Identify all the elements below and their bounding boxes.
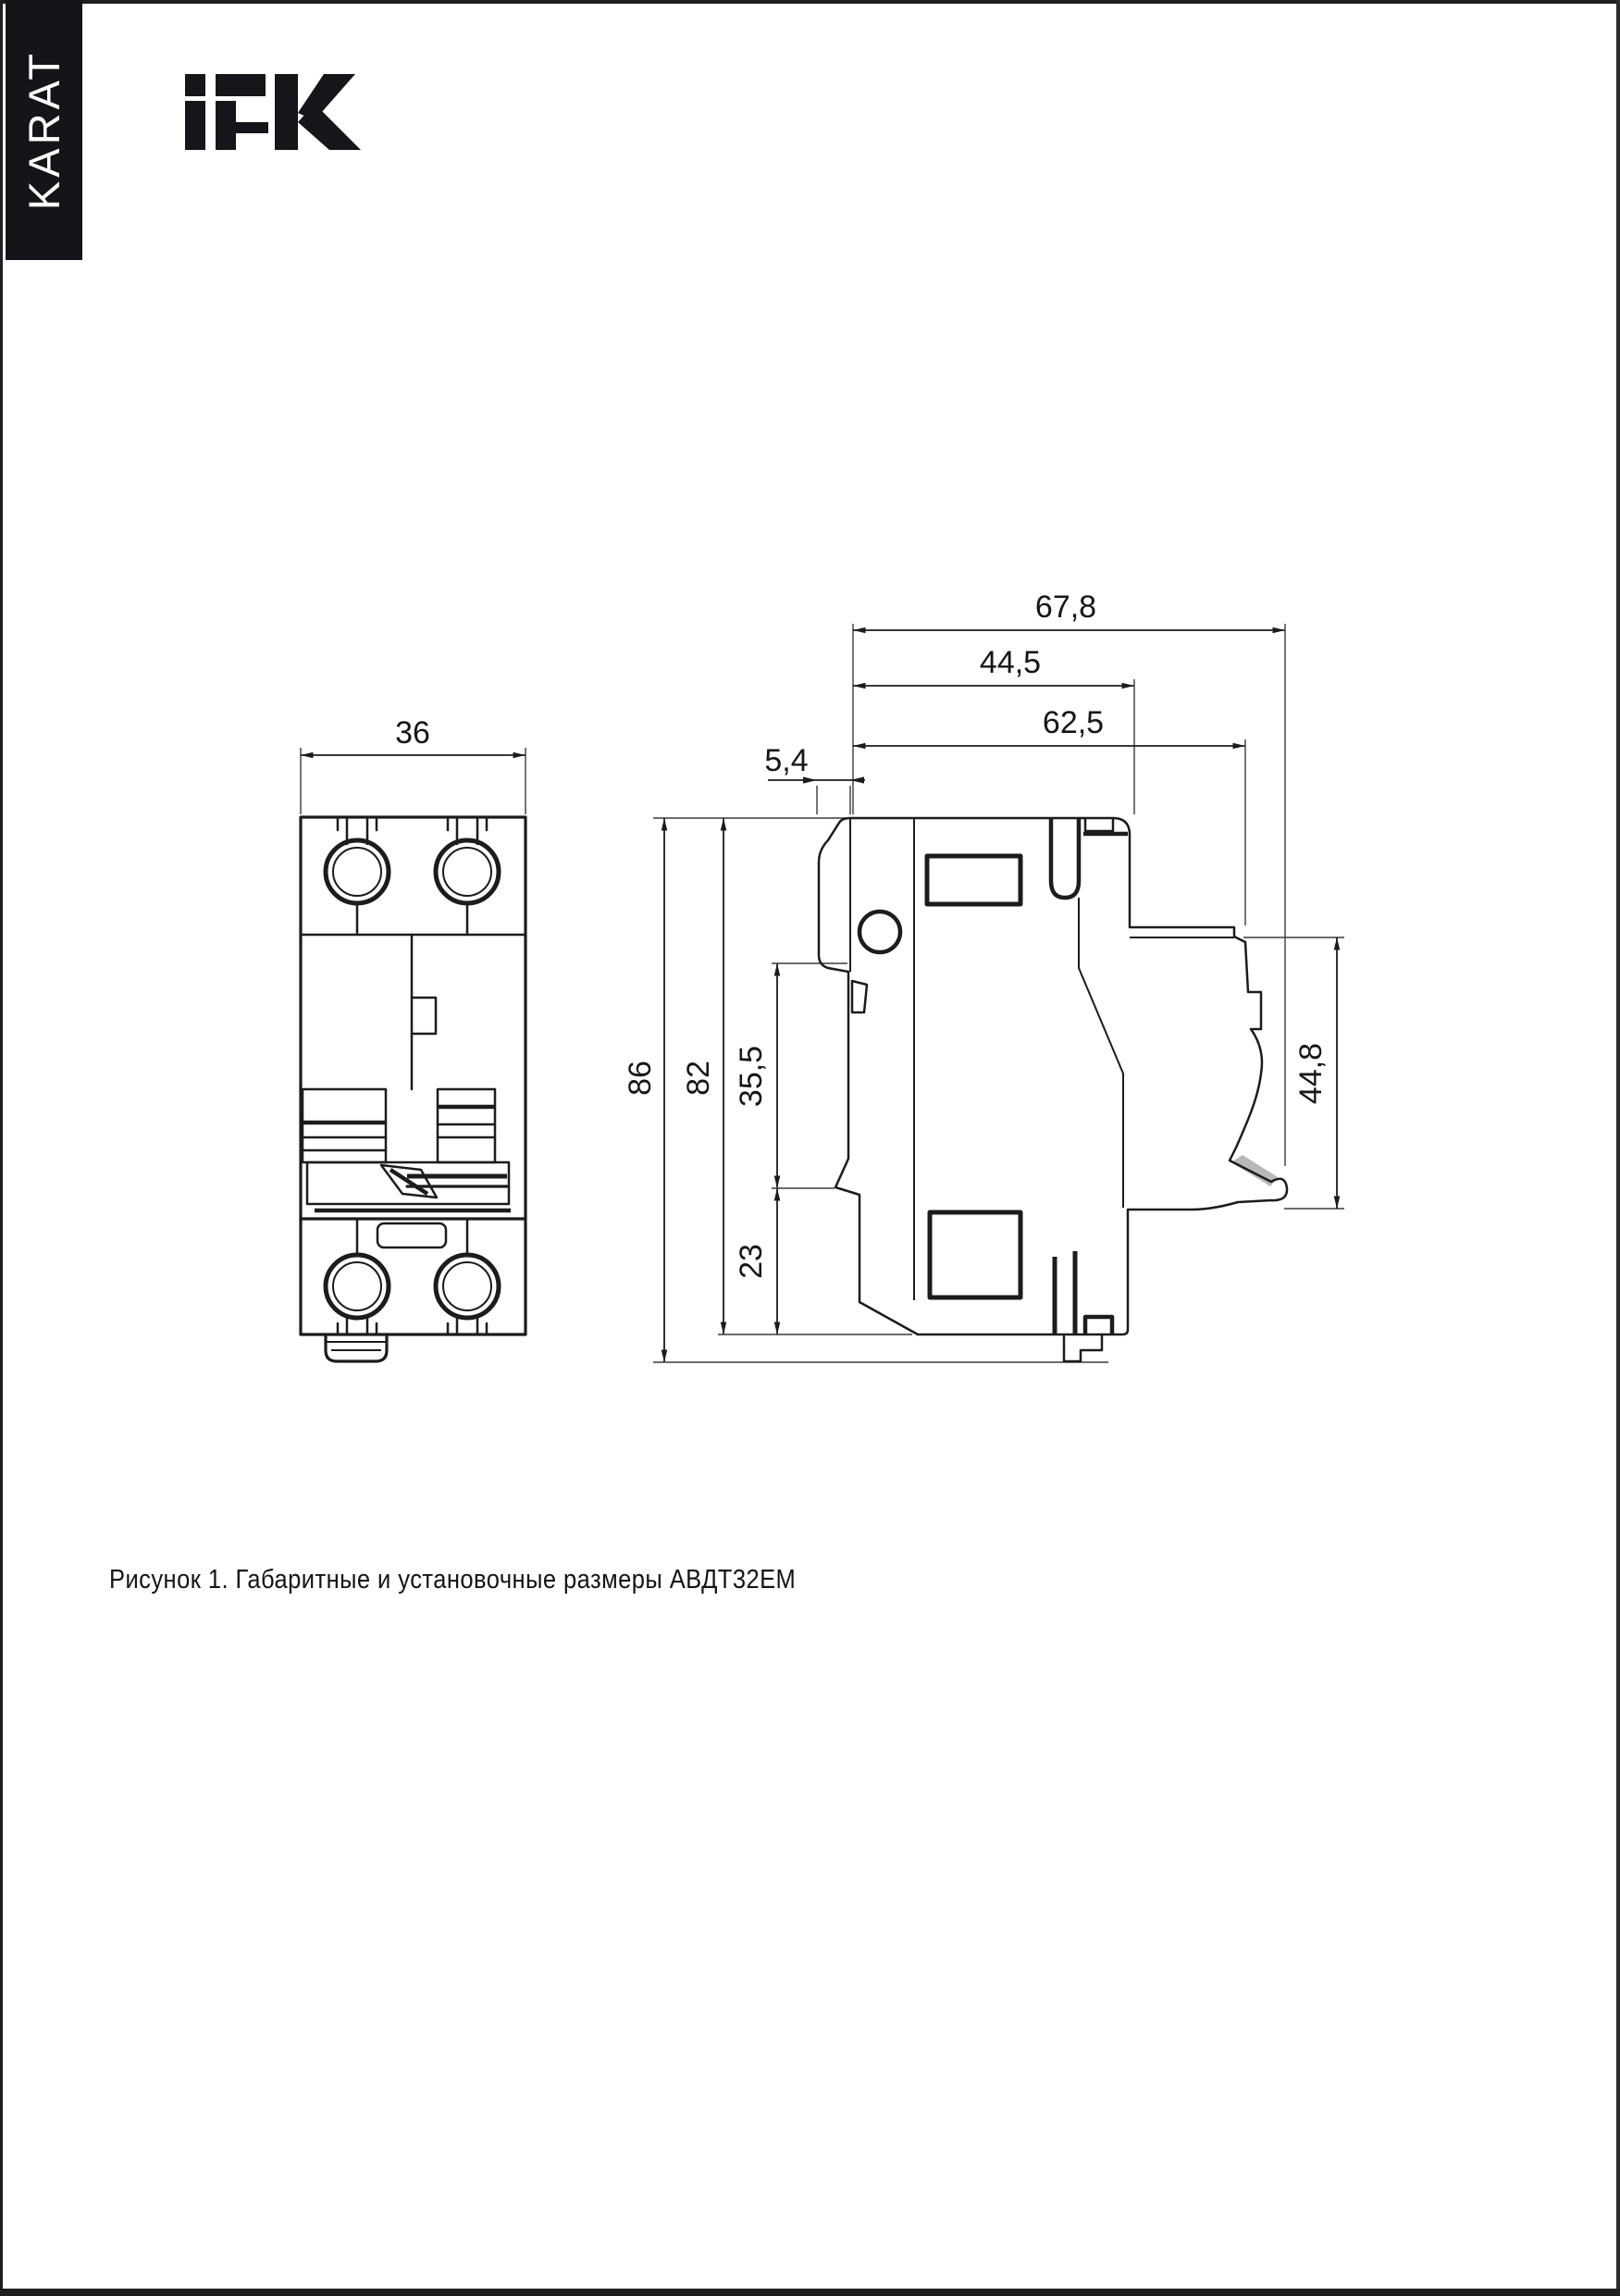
- figure-caption: Рисунок 1. Габаритные и установочные раз…: [109, 1565, 796, 1595]
- front-toggle-assembly: [307, 1162, 511, 1210]
- upper-label-panel: [927, 856, 1020, 904]
- side-din-foot: [1064, 1334, 1102, 1361]
- front-mechanism-blocks: [303, 1089, 495, 1162]
- lower-height-dim-label: 23: [734, 1244, 769, 1279]
- rear-step-line: [1079, 898, 1123, 1208]
- handle-lock-tab: [852, 981, 867, 1012]
- overall-depth-dim-label: 67,8: [1035, 590, 1096, 625]
- front-din-foot: [326, 1334, 387, 1361]
- handle-depth-dim-label: 5,4: [764, 743, 808, 778]
- lower-label-panel: [930, 1212, 1020, 1297]
- front-view: 36: [301, 715, 526, 1361]
- front-lower-tab: [377, 1223, 446, 1247]
- overall-height-dim-label: 86: [623, 1061, 658, 1096]
- rail-depth-dim-label: 62,5: [1043, 705, 1104, 740]
- body-height-dim-label: 82: [681, 1061, 716, 1096]
- test-button: [859, 912, 900, 952]
- top-terminal-screws: [326, 819, 499, 935]
- bottom-terminal-screws: [326, 1219, 499, 1334]
- rail-height-dim-label: 44,8: [1293, 1043, 1329, 1104]
- document-page: KARAT 36: [0, 0, 1620, 2296]
- side-view: 67,8 44,5 62,5 5,4 86 82 35,5: [623, 590, 1344, 1362]
- mid-height-dim-label: 35,5: [734, 1046, 769, 1107]
- front-centre-partition: [412, 935, 436, 1089]
- top-clip-slot: [1051, 818, 1079, 898]
- front-width-dim-label: 36: [395, 715, 430, 751]
- dimension-drawing: 36: [0, 0, 1620, 2296]
- upper-depth-dim-label: 44,5: [980, 645, 1041, 680]
- top-right-notch: [1085, 818, 1113, 831]
- side-din-feet: [1055, 1251, 1112, 1361]
